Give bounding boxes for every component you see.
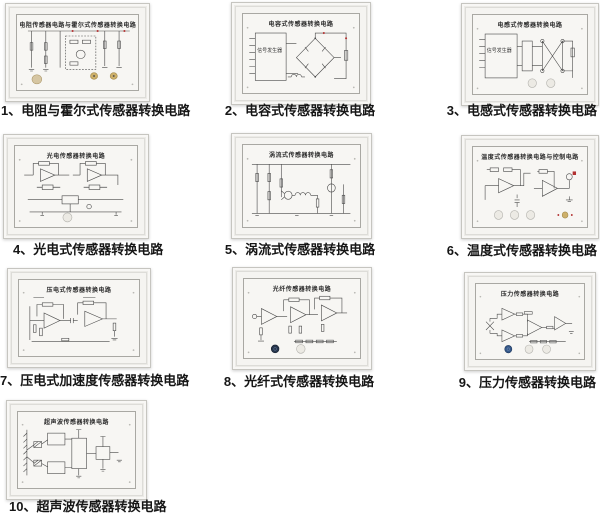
caption-9: 9、压力传感器转换电路 bbox=[459, 376, 596, 390]
knob-icon bbox=[528, 79, 536, 88]
panel-board-1: 电阻传感器电路与霍尔式传感器转换电路 bbox=[5, 3, 150, 102]
knob-icon bbox=[495, 211, 503, 220]
circuit-schematic bbox=[245, 157, 357, 223]
caption-2: 2、电容式传感器转换电路 bbox=[225, 104, 375, 118]
caption-6: 6、温度式传感器转换电路 bbox=[447, 244, 597, 258]
panel-inner: 电阻传感器电路与霍尔式传感器转换电路 bbox=[16, 14, 139, 91]
circuit-schematic bbox=[17, 158, 134, 223]
panel-board-5: 涡流式传感器转换电路 bbox=[231, 133, 372, 239]
panel-face: 光纤传感器转换电路 bbox=[236, 271, 368, 366]
panel-inner: 压电式传感器转换电路 bbox=[18, 279, 140, 357]
knob-icon bbox=[525, 345, 533, 353]
caption-7: 7、压电式加速度传感器转换电路 bbox=[0, 374, 189, 388]
panel-board-9: 压力传感器转换电路 bbox=[464, 272, 596, 371]
circuit-schematic bbox=[246, 291, 357, 354]
circuit-schematic bbox=[20, 423, 132, 484]
caption-1: 1、电阻与霍尔式传感器转换电路 bbox=[1, 104, 190, 118]
knob-icon bbox=[63, 213, 72, 222]
caption-5: 5、涡流式传感器转换电路 bbox=[225, 243, 375, 257]
panel-face: 温度式传感器转换电路与控制电路 bbox=[465, 139, 595, 235]
panel-board-8: 光纤传感器转换电路 bbox=[232, 267, 372, 370]
knob-icon bbox=[527, 211, 535, 220]
panel-inner: 电容式传感器转换电路 信号发生器 bbox=[242, 13, 360, 94]
circuit-schematic bbox=[475, 27, 584, 90]
panel-board-6: 温度式传感器转换电路与控制电路 bbox=[461, 135, 599, 239]
knob-icon bbox=[505, 346, 512, 354]
panel-board-10: 超声波传感器转换电路 bbox=[6, 400, 147, 500]
panel-face: 涡流式传感器转换电路 bbox=[235, 137, 368, 235]
panel-board-3: 电感式传感器转换电路 信号发生器 bbox=[461, 3, 599, 106]
panel-face: 电阻传感器电路与霍尔式传感器转换电路 bbox=[9, 7, 146, 98]
knob-icon bbox=[547, 79, 555, 88]
circuit-schematic bbox=[245, 26, 356, 89]
panel-board-2: 电容式传感器转换电路 信号发生器 bbox=[231, 2, 371, 105]
knob-icon bbox=[297, 344, 306, 353]
panel-inner: 超声波传感器转换电路 bbox=[17, 411, 136, 489]
caption-8: 8、光纤式传感器转换电路 bbox=[224, 375, 374, 389]
knob-icon bbox=[543, 345, 551, 353]
panel-inner: 光电传感器转换电路 bbox=[14, 145, 138, 228]
terminal-knob-icon bbox=[562, 212, 568, 218]
panel-inner: 电感式传感器转换电路 信号发生器 bbox=[472, 14, 588, 95]
caption-3: 3、电感式传感器转换电路 bbox=[447, 104, 597, 118]
circuit-schematic bbox=[19, 26, 135, 86]
panel-face: 压力传感器转换电路 bbox=[468, 276, 592, 367]
panel-face: 超声波传感器转换电路 bbox=[10, 404, 143, 496]
panel-face: 电感式传感器转换电路 信号发生器 bbox=[465, 7, 595, 102]
panel-board-4: 光电传感器转换电路 bbox=[3, 134, 149, 239]
panel-inner: 涡流式传感器转换电路 bbox=[242, 144, 361, 228]
knob-icon bbox=[272, 345, 280, 353]
knob-icon bbox=[511, 211, 519, 220]
circuit-schematic bbox=[478, 295, 582, 355]
panel-inner: 压力传感器转换电路 bbox=[475, 283, 585, 360]
circuit-schematic bbox=[475, 159, 584, 223]
panel-inner: 光纤传感器转换电路 bbox=[243, 278, 361, 359]
caption-4: 4、光电式传感器转换电路 bbox=[13, 243, 163, 257]
panel-inner: 温度式传感器转换电路与控制电路 bbox=[472, 146, 588, 228]
panel-face: 电容式传感器转换电路 信号发生器 bbox=[235, 6, 367, 101]
circuit-schematic bbox=[21, 291, 136, 352]
catalog-page: 电阻传感器电路与霍尔式传感器转换电路 bbox=[0, 0, 600, 516]
panel-board-7: 压电式传感器转换电路 bbox=[7, 268, 151, 368]
panel-face: 压电式传感器转换电路 bbox=[11, 272, 147, 364]
panel-face: 光电传感器转换电路 bbox=[7, 138, 145, 235]
caption-10: 10、超声波传感器转换电路 bbox=[9, 500, 166, 514]
knob-icon bbox=[32, 75, 42, 84]
